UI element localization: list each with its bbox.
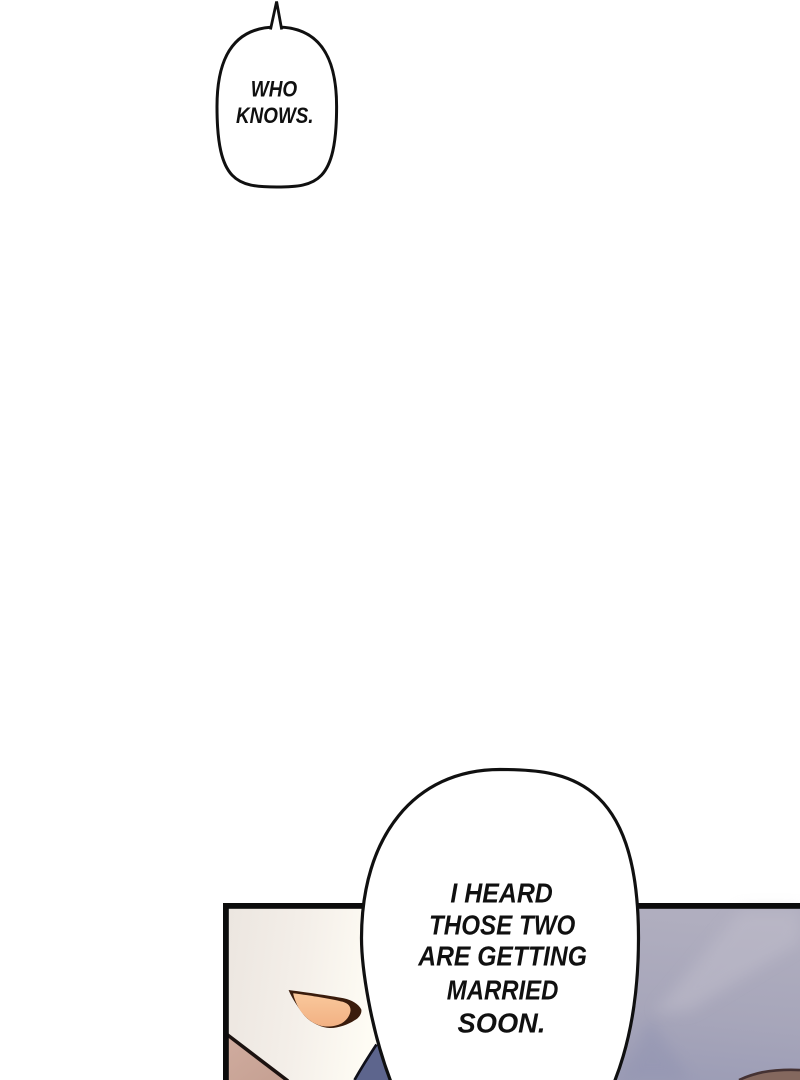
svg-text:MARRIED: MARRIED [447,974,559,1005]
svg-text:KNOWS.: KNOWS. [236,103,314,128]
svg-text:WHO: WHO [251,77,298,102]
svg-text:SOON.: SOON. [458,1008,546,1039]
svg-text:THOSE TWO: THOSE TWO [429,909,575,940]
svg-text:I HEARD: I HEARD [450,878,552,909]
svg-text:ARE GETTING: ARE GETTING [417,941,586,972]
